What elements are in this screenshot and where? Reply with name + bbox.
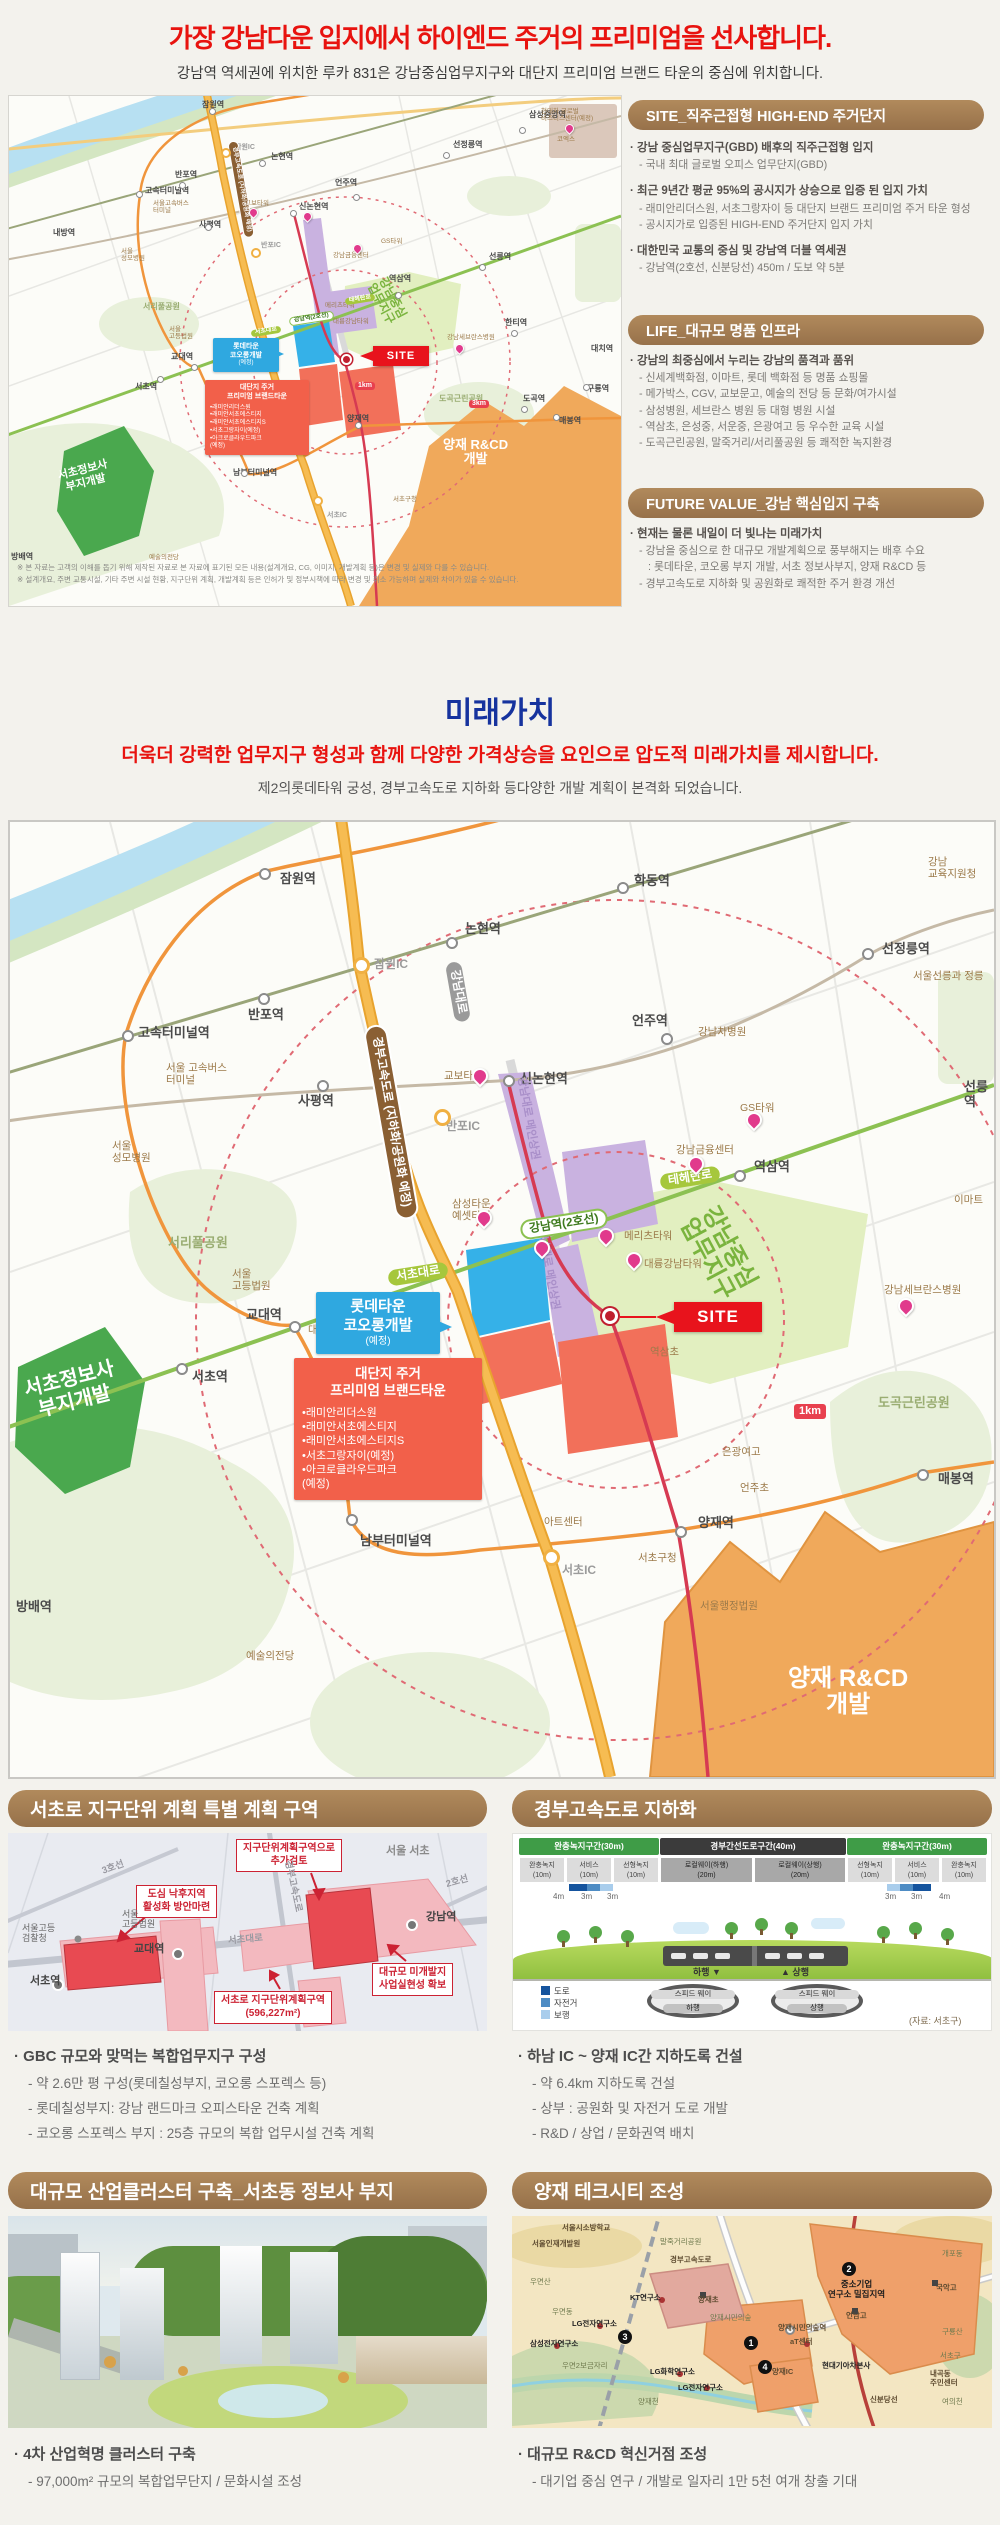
text-line: - 경부고속도로 지하화 및 공원화로 쾌적한 주거 환경 개선 — [630, 576, 996, 592]
map-label: 사평역 — [298, 1094, 334, 1109]
map-label: 방배역 — [11, 552, 33, 561]
cluster-rendering-photo — [8, 2216, 487, 2428]
lane-bar — [913, 1884, 931, 1891]
map-label: 서초구청 — [638, 1552, 677, 1564]
page: 가장 강남다운 입지에서 하이엔드 주거의 프리미엄을 선사합니다. 강남역 역… — [0, 0, 1000, 2525]
map-label — [289, 1321, 301, 1333]
text-line: - 강남을 중심으로 한 대규모 개발계획으로 풍부해지는 배후 수요 — [630, 543, 996, 559]
tree-icon — [589, 1926, 602, 1939]
text-line: - 97,000m² 규모의 복합업무단지 / 문화시설 조성 — [14, 2472, 484, 2492]
map-label: 서울선릉과 정릉 — [913, 970, 984, 982]
text-line: - 신세계백화점, 이마트, 롯데 백화점 등 명품 쇼핑몰 — [630, 370, 996, 386]
map-label: 역삼역 — [754, 1160, 790, 1175]
car-icon — [715, 1953, 730, 1959]
cloud-icon — [673, 1922, 709, 1934]
map-label: 서울 성모병원 — [112, 1140, 151, 1164]
tree-icon — [909, 1922, 922, 1935]
site-pointer — [360, 351, 373, 361]
seochoro-bullets: · GBC 규모와 맞먹는 복합업무지구 구성- 약 2.6만 평 구성(롯데칠… — [14, 2046, 484, 2144]
map-label — [251, 248, 261, 258]
autumn-tree-icon — [104, 2356, 116, 2368]
lane-bar — [600, 1884, 613, 1891]
callout-pointer — [299, 408, 308, 416]
techcity-map-label: LG화학연구소 — [650, 2368, 695, 2377]
map-label — [511, 330, 518, 337]
map-label: 매봉역 — [559, 416, 581, 425]
site-dot — [602, 1308, 618, 1324]
lotte-town-callout: 롯데타운 코오롱개발 (예정) — [213, 338, 279, 372]
section-subtitle-future-value: 더욱더 강력한 업무지구 형성과 함께 다양한 가격상승을 요인으로 압도적 미… — [0, 740, 1000, 767]
techcity-map-label: 양재시민의숲역 — [778, 2324, 826, 2333]
autumn-tree-icon — [178, 2366, 188, 2376]
text-line: - 약 2.6만 평 구성(롯데칠성부지, 코오롱 스포렉스 등) — [14, 2074, 484, 2094]
map-label — [503, 1075, 515, 1087]
techcity-map-label: KT연구소 — [630, 2294, 661, 2303]
tree-icon — [785, 1922, 798, 1935]
techcity-map-label: 2 — [842, 2262, 856, 2276]
tree-icon — [557, 1930, 570, 1943]
cross-section-label: 4m — [939, 1892, 950, 1901]
techcity-map-label: 말죽거리공원 — [660, 2238, 701, 2247]
cross-section-label: 완충녹지 (10m) — [519, 1857, 565, 1883]
lane-bar — [569, 1884, 587, 1891]
map-label: 남부터미널역 — [360, 1534, 432, 1549]
cross-section-label: 완충녹지구간(30m) — [847, 1838, 987, 1855]
map-label: 이마트 — [954, 1194, 983, 1206]
map-label — [157, 376, 164, 383]
text-line: - 래미안리더스원, 서초그랑자이 등 대단지 브랜드 프리미엄 주거 타운 형… — [630, 201, 996, 217]
techcity-map-label: 서울인재개발원 — [532, 2240, 580, 2249]
callout-item: •래미안서초에스티지 — [210, 412, 304, 420]
techcity-map-label: 현대기아차본사 — [822, 2362, 870, 2371]
site-dot — [341, 354, 352, 365]
map-label: 서리풀공원 — [168, 1236, 228, 1251]
text-line: · 최근 9년간 평균 95%의 공시지가 상승으로 입증 된 입지 가치 — [630, 183, 996, 200]
map-label — [917, 1469, 929, 1481]
site-pointer-line — [620, 1316, 656, 1318]
cross-section-label: 하행 — [663, 2004, 723, 2013]
techcity-map-label: 신분당선 — [870, 2396, 898, 2405]
map-label — [353, 194, 360, 201]
techcity-map-label: 우면2보금자리 — [562, 2362, 608, 2371]
map-label: 반포역 — [248, 1008, 284, 1023]
cross-section-label: 스피드 웨이 — [775, 1990, 859, 1999]
tree-icon — [725, 1922, 738, 1935]
cross-section-label: (자료: 서초구) — [909, 2016, 961, 2026]
callout-item: •래미안서초에스티지S — [302, 1434, 474, 1448]
cross-section-label: 도로 — [541, 1986, 570, 1997]
map-label — [136, 191, 143, 198]
callout-pointer — [436, 1320, 452, 1334]
map-label: 양재역 — [698, 1516, 734, 1531]
text-line: · 대규모 R&CD 혁신거점 조성 — [518, 2444, 988, 2467]
map-label: 서초역 — [192, 1370, 228, 1385]
panel-future-body: · 현재는 물론 내일이 더 빛나는 미래가치- 강남을 중심으로 한 대규모 … — [630, 526, 996, 592]
techcity-map-label: 양재시민의숲 — [710, 2314, 751, 2323]
disclaimer-line: ※ 본 자료는 고객의 이해를 돕기 위해 제작된 자료로 본 자료에 표기된 … — [17, 562, 518, 574]
map-label — [617, 882, 629, 894]
tree-icon — [755, 1918, 768, 1931]
map-label: 방배역 — [16, 1600, 52, 1615]
section-header-cluster: 대규모 산업클러스터 구축_서초동 정보사 부지 — [8, 2172, 487, 2209]
map-label: 강남금융센터 — [676, 1144, 734, 1156]
lotte-town-callout: 롯데타운 코오롱개발 (예정) — [316, 1292, 440, 1354]
map-label — [446, 937, 458, 949]
section-header-underground: 경부고속도로 지하화 — [512, 1790, 992, 1827]
map-label: 서울 고등법원 — [232, 1268, 271, 1292]
techcity-map-label: 1 — [744, 2336, 758, 2350]
callout-line: 코오롱개발 — [318, 1317, 438, 1336]
map-label: 예술의전당 — [246, 1650, 294, 1662]
map-label: 교대역 — [246, 1308, 282, 1323]
map-label: 논현역 — [465, 922, 501, 937]
map-label: 반포역 — [175, 170, 197, 179]
callout-line: 롯데타운 — [318, 1298, 438, 1317]
text-line: - R&D / 상업 / 문화권역 배치 — [518, 2124, 988, 2144]
map-label: 신논현역 — [299, 202, 328, 211]
plan-map-label: 서초역 — [30, 1975, 60, 1988]
map-label — [355, 422, 362, 429]
seochoro-plan-map: 지구단위계획구역으로 추가검토서울 서초3호선2호선도심 낙후지역 활성화 방안… — [8, 1833, 487, 2031]
techcity-map-label: 언남고 — [846, 2312, 867, 2321]
techcity-map-label: 중소기업 연구소 밀집지역 — [828, 2280, 885, 2300]
callout-item: •아크로클라우드파크 (예정) — [210, 436, 304, 452]
text-line: - 코오롱 스포렉스 부지 : 25층 규모의 복합 업무시설 건축 계획 — [14, 2124, 484, 2144]
map-label: 언주역 — [632, 1014, 668, 1029]
cross-section-label: 상행 — [787, 2004, 847, 2013]
tower — [220, 2246, 262, 2364]
site-badge: SITE — [674, 1302, 762, 1332]
page-subtitle: 강남역 역세권에 위치한 루카 831은 강남중심업무지구와 대단지 프리미엄 … — [0, 62, 1000, 83]
techcity-map-label: 내곡동 주민센터 — [930, 2370, 958, 2387]
section-title-future-value: 미래가치 — [0, 688, 1000, 732]
map-label — [258, 993, 270, 1005]
techcity-map-label: LG전자연구소 — [678, 2384, 723, 2393]
text-line: · 4차 산업혁명 클러스터 구축 — [14, 2444, 484, 2467]
techcity-map-label: 4 — [758, 2360, 772, 2374]
map-label — [553, 414, 560, 421]
map-label — [353, 957, 370, 974]
map-label — [259, 868, 271, 880]
panel-site-body: · 강남 중심업무지구(GBD) 배후의 직주근접형 입지- 국내 최대 글로벌… — [630, 140, 996, 277]
callout-line: 롯데타운 — [215, 342, 277, 351]
autumn-tree-icon — [338, 2372, 349, 2383]
techcity-map-label: 양재IC — [772, 2368, 793, 2377]
callout-item: •아크로클라우드파크 (예정) — [302, 1463, 474, 1492]
text-line: · GBC 규모와 맞먹는 복합업무지구 구성 — [14, 2046, 484, 2069]
map-label: 3km — [469, 400, 489, 408]
car-icon — [765, 1953, 780, 1959]
map-label: 대륭강남타워 — [333, 318, 369, 325]
plan-map-label: 서울 고등법원 — [122, 1909, 155, 1930]
map-label: 메리츠타워 — [624, 1230, 672, 1242]
section-desc-future-value: 제2의롯데타워 궁성, 경부고속도로 지하화 등다양한 개발 계획이 본격화 되… — [0, 778, 1000, 798]
callout-item: •래미안리더스원 — [302, 1406, 474, 1420]
techcity-map-label: 양재초 — [698, 2296, 719, 2305]
site-pointer — [656, 1310, 674, 1324]
map-label: 강남 교육지원청 — [928, 856, 976, 880]
techcity-map-label: 서초구 — [940, 2352, 961, 2361]
map-label: 강남세브란스병원 — [447, 334, 495, 341]
tunnel-divider — [752, 1946, 757, 1966]
map-label: 선정릉역 — [453, 140, 482, 149]
map-label: 예술의전당 — [149, 554, 179, 561]
map-label — [543, 1549, 560, 1566]
tree-icon — [941, 1928, 954, 1941]
cross-section-label: 선형녹지 (10m) — [613, 1857, 659, 1883]
text-line: · 강남 중심업무지구(GBD) 배후의 직주근접형 입지 — [630, 140, 996, 157]
map-label: 서울행정법원 — [700, 1600, 758, 1612]
text-line: - 강남역(2호선, 신분당선) 450m / 도보 약 5분 — [630, 260, 996, 276]
underground-cross-section: 완충녹지구간(30m)경부간선도로구간(40m)완충녹지구간(30m)완충녹지 … — [512, 1833, 992, 2031]
section-header-seochoro: 서초로 지구단위 계획 특별 계획 구역 — [8, 1790, 487, 1827]
plan-map-label: 서울고등 검찰청 — [22, 1923, 55, 1944]
map-label — [290, 210, 297, 217]
map-label — [122, 1030, 134, 1042]
map-art — [10, 822, 994, 1777]
cross-section-label: 경부간선도로구간(40m) — [660, 1838, 846, 1855]
map-label: 역삼초 — [650, 1346, 679, 1358]
text-line: - 국내 최대 글로벌 오피스 업무단지(GBD) — [630, 157, 996, 173]
map-art — [9, 96, 621, 606]
cross-section-label: 3m — [911, 1892, 922, 1901]
map-label — [221, 148, 231, 158]
cross-section-label: 로컬웨이(상행) (20m) — [754, 1857, 846, 1883]
map-label — [179, 182, 186, 189]
callout-item: •서초그랑자이(예정) — [210, 428, 304, 436]
map-label: 반포IC — [261, 242, 281, 250]
cross-section-label: 3m — [885, 1892, 896, 1901]
cross-section-label: 서비스 (10m) — [566, 1857, 612, 1883]
map-label: 1km — [355, 382, 375, 390]
map-label: 양재 R&CD 개발 — [788, 1666, 908, 1719]
plan-map-label: 대규모 미개발지 사업실현성 확보 — [372, 1963, 453, 1996]
map-label: 은광여고 — [722, 1446, 761, 1458]
map-label: 서울 성모병원 — [121, 248, 145, 263]
map-label: 서울 고등법원 — [169, 326, 193, 341]
lane-bar — [900, 1884, 913, 1891]
techcity-map-label: LG전자연구소 — [572, 2320, 617, 2329]
map-label: 한티역 — [505, 318, 527, 327]
map-label: 선릉역 — [489, 252, 511, 261]
tower — [290, 2252, 338, 2364]
text-line: - 삼성병원, 세브란스 병원 등 대형 병원 시설 — [630, 403, 996, 419]
map-label: 교대역 — [171, 352, 193, 361]
panel-life-body: · 강남의 최중심에서 누리는 강남의 품격과 품위- 신세계백화점, 이마트,… — [630, 353, 996, 451]
map-label — [479, 264, 486, 271]
map-label — [191, 364, 198, 371]
map-label — [317, 1080, 329, 1092]
map-label: 서울고속버스 터미널 — [153, 200, 189, 215]
map-label — [395, 292, 402, 299]
map-label: 구룡역 — [587, 384, 609, 393]
techcity-bullets: · 대규모 R&CD 혁신거점 조성- 대기업 중심 연구 / 개발로 일자리 … — [518, 2444, 988, 2492]
car-icon — [671, 1953, 686, 1959]
map-label: GS타워 — [381, 238, 402, 245]
techcity-map-label: 구룡산 — [942, 2328, 963, 2337]
map-label: 강남세브란스병원 — [884, 1284, 961, 1296]
map-label: 남부터미널역 — [233, 468, 277, 477]
techcity-map-label: 삼성전자연구소 — [530, 2340, 578, 2349]
map-label: 서초역 — [135, 382, 157, 391]
map-label: 고속터미널역 — [138, 1026, 210, 1041]
cross-section-label: 선형녹지 (10m) — [847, 1857, 893, 1883]
techcity-map-label: 여의천 — [942, 2398, 963, 2407]
map-label: 코엑스 — [557, 136, 575, 143]
map-label: 언주역 — [335, 178, 357, 187]
map-label — [346, 1514, 358, 1526]
car-icon — [787, 1953, 802, 1959]
techcity-map-label: aT센터 — [790, 2338, 813, 2347]
techcity-map-label: 개포동 — [942, 2250, 963, 2259]
text-line: - 역삼초, 은성중, 서운중, 은광여고 등 우수한 교육 시설 — [630, 419, 996, 435]
map-label: 대치역 — [591, 344, 613, 353]
plan-map-label: 서초로 지구단위계획구역 (596,227m²) — [214, 1991, 332, 2024]
tower — [120, 2268, 164, 2380]
callout-item: •래미안서초에스티지S — [210, 420, 304, 428]
cluster-bullets: · 4차 산업혁명 클러스터 구축- 97,000m² 규모의 복합업무단지 /… — [14, 2444, 484, 2492]
callout-line: (예정) — [215, 360, 277, 368]
brand-town-callout: 대단지 주거 프리미엄 브랜드타운 •래미안리더스원•래미안서초에스티지•래미안… — [294, 1358, 482, 1500]
map-label — [241, 470, 248, 477]
cross-section-label: ▲ 상행 — [781, 1967, 809, 1977]
map-label — [209, 108, 216, 115]
map-label — [862, 948, 874, 960]
plan-map-label: 강남역 — [426, 1911, 456, 1924]
map-label — [675, 1526, 687, 1538]
map-label — [521, 406, 528, 413]
plan-map-label: 교대역 — [134, 1943, 164, 1956]
map-label: 강남금융센터 — [333, 252, 369, 259]
text-line: - 상부 : 공원화 및 자전거 도로 개발 — [518, 2099, 988, 2119]
map-label — [661, 1033, 673, 1045]
callout-title: 대단지 주거 프리미엄 브랜드타운 — [302, 1366, 474, 1400]
panel-header-site: SITE_직주근접형 HIGH-END 주거단지 — [628, 100, 984, 130]
map-label: 서초구청 — [393, 496, 417, 503]
techcity-map-label: 3 — [618, 2330, 632, 2344]
ground-line — [513, 1979, 992, 1981]
map-label — [205, 224, 212, 231]
map-label: 강남차병원 — [698, 1026, 746, 1038]
map-label — [583, 384, 590, 391]
map-label: 반포IC — [446, 1120, 480, 1134]
map-label: 아트센터 — [544, 1516, 583, 1528]
map-label — [519, 127, 526, 134]
cross-section-label: 스피드 웨이 — [651, 1990, 735, 1999]
callout-pointer — [275, 350, 284, 358]
cross-section-label: 3m — [607, 1892, 618, 1901]
map-label: 선정릉역 — [882, 942, 930, 957]
map-label — [313, 496, 323, 506]
map-label: 매봉역 — [938, 1472, 974, 1487]
text-line: - 롯데칠성부지: 강남 랜드마크 오피스타운 건축 계획 — [14, 2099, 484, 2119]
text-line: : 롯데타운, 코오롱 부지 개발, 서초 정보사부지, 양재 R&CD 등 — [630, 559, 996, 575]
techcity-map-label: 우면산 — [530, 2278, 551, 2287]
cross-section-label: 완충녹지 (10m) — [941, 1857, 987, 1883]
callout-pointer — [466, 1420, 482, 1434]
map-label: 서초IC — [327, 512, 347, 520]
low-rise — [356, 2336, 487, 2384]
cloud-icon — [811, 1918, 845, 1929]
cross-section-label: 서비스 (10m) — [894, 1857, 940, 1883]
techcity-map-label: 양재천 — [638, 2398, 659, 2407]
map-label: 잠원IC — [374, 958, 408, 972]
location-map-small: 잠원역논현역언주역선정릉역삼성중앙역선릉역반포역고속터미널역사평역신논현역내방역… — [8, 95, 622, 607]
techcity-map-label: 우면동 — [552, 2308, 573, 2317]
map-label: 내방역 — [53, 228, 75, 237]
map-label: 서울 고속버스 터미널 — [166, 1062, 227, 1086]
car-icon — [693, 1953, 708, 1959]
callout-line: 코오롱개발 — [215, 351, 277, 360]
text-line: - 메가박스, CGV, 교보문고, 예술의 전당 등 문화/여가시설 — [630, 386, 996, 402]
text-line: · 하남 IC ~ 양재 IC간 지하도록 건설 — [518, 2046, 988, 2069]
page-title: 가장 강남다운 입지에서 하이엔드 주거의 프리미엄을 선사합니다. — [0, 18, 1000, 55]
cross-section-label: 4m — [553, 1892, 564, 1901]
map-label: 선릉역 — [964, 1080, 994, 1110]
cross-section-label: 로컬웨이(하행) (20m) — [660, 1857, 753, 1883]
brand-town-callout: 대단지 주거 프리미엄 브랜드타운 •래미안리더스원•래미안서초에스티지•래미안… — [205, 380, 309, 455]
disclaimer-line: ※ 설계개요, 주변 교통시설, 기타 주변 시설 현황, 지구단위 계획, 개… — [17, 574, 518, 586]
lane-bar — [887, 1884, 900, 1891]
lane-bar — [587, 1884, 600, 1891]
map-label — [434, 1109, 451, 1126]
callout-title: 대단지 주거 프리미엄 브랜드타운 — [210, 384, 304, 402]
techcity-map-label: 경부고속도로 — [670, 2256, 711, 2265]
map-label: 도곡역 — [523, 394, 545, 403]
map-label: 1km — [794, 1404, 826, 1419]
text-line: · 대한민국 교통의 중심 및 강남역 더블 역세권 — [630, 243, 996, 260]
text-line: - 대기업 중심 연구 / 개발로 일자리 1만 5천 여개 창출 기대 — [518, 2472, 988, 2492]
text-line: - 공시지가로 입증된 HIGH-END 주거단지 입지 가치 — [630, 217, 996, 233]
map-label: 서초IC — [562, 1564, 596, 1578]
site-badge: SITE — [373, 346, 429, 366]
callout-line: (예정) — [318, 1336, 438, 1349]
callout-item: •래미안서초에스티지 — [302, 1420, 474, 1434]
map-label: 도곡근린공원 — [878, 1396, 950, 1411]
cross-section-label: 보행 — [541, 2010, 570, 2021]
map-label — [734, 1170, 746, 1182]
callout-item: •서초그랑자이(예정) — [302, 1449, 474, 1463]
panel-header-future: FUTURE VALUE_강남 핵심입지 구축 — [628, 488, 984, 518]
plan-map-label: 서울 서초 — [386, 1845, 430, 1858]
map-label — [176, 1363, 188, 1375]
text-line: - 도곡근린공원, 말죽거리/서리풀공원 등 쾌적한 녹지환경 — [630, 435, 996, 451]
tower — [60, 2252, 100, 2380]
map-label: 현대차 글로벌 비즈니스센터(예정) — [541, 108, 593, 123]
underground-bullets: · 하남 IC ~ 양재 IC간 지하도록 건설- 약 6.4km 지하도록 건… — [518, 2046, 988, 2144]
panel-header-life: LIFE_대규모 명품 인프라 — [628, 315, 984, 345]
map-label: 언주초 — [740, 1482, 769, 1494]
section-header-techcity: 양재 테크시티 조성 — [512, 2172, 992, 2209]
map-label: 서리풀공원 — [143, 302, 180, 311]
map-label: 논현역 — [271, 152, 293, 161]
map-label: 학동역 — [634, 874, 670, 889]
cross-section-label: 3m — [581, 1892, 592, 1901]
map-label: 양재 R&CD 개발 — [443, 438, 508, 467]
pond — [218, 2384, 328, 2418]
map-label — [443, 152, 450, 159]
map-label — [259, 160, 266, 167]
tree-icon — [621, 1930, 634, 1943]
cross-section-label: 완충녹지구간(30m) — [519, 1838, 659, 1855]
cross-section-label: 하행 ▼ — [693, 1967, 721, 1977]
text-line: - 약 6.4km 지하도록 건설 — [518, 2074, 988, 2094]
car-icon — [809, 1953, 824, 1959]
cross-section-label: 자전거 — [541, 1998, 577, 2009]
map-label: 잠원역 — [280, 872, 316, 887]
techcity-map: 서울시소방학교서울인재개발원말죽거리공원경부고속도로우면산우면동KT연구소LG전… — [512, 2216, 992, 2428]
techcity-map-label: 서울시소방학교 — [562, 2224, 610, 2233]
